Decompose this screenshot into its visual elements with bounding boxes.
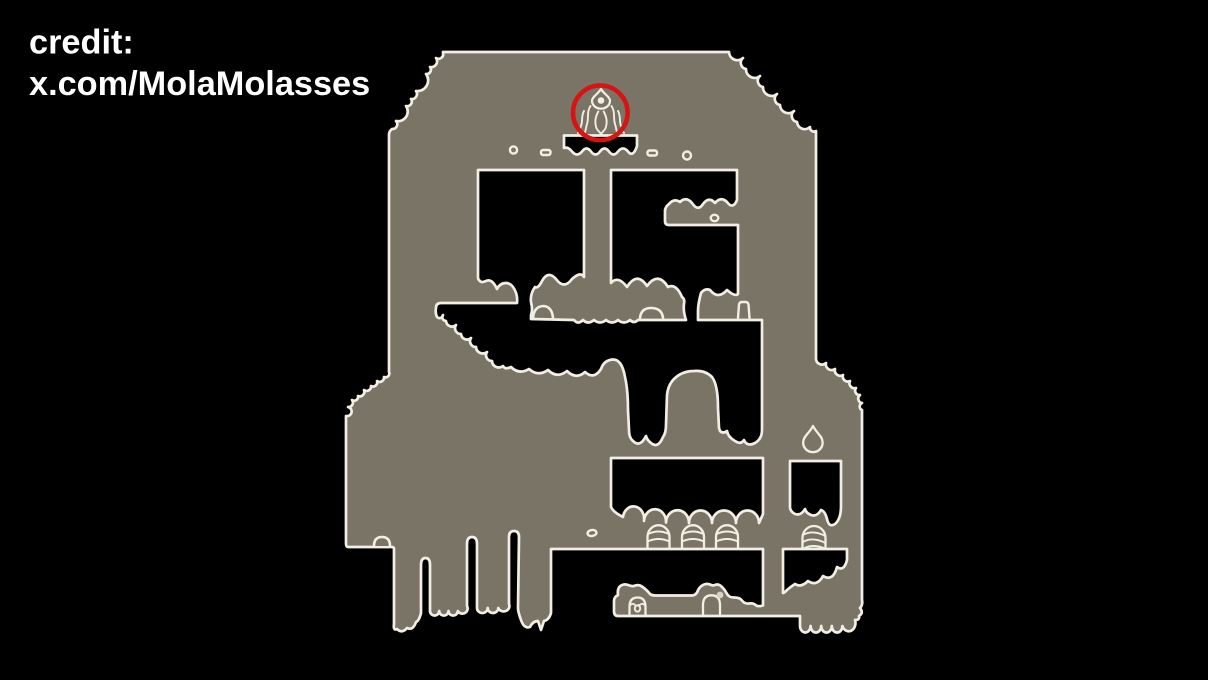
svg-text:credit:: credit:	[29, 24, 134, 62]
svg-text:x.com/MolaMolasses: x.com/MolaMolasses	[29, 65, 370, 103]
